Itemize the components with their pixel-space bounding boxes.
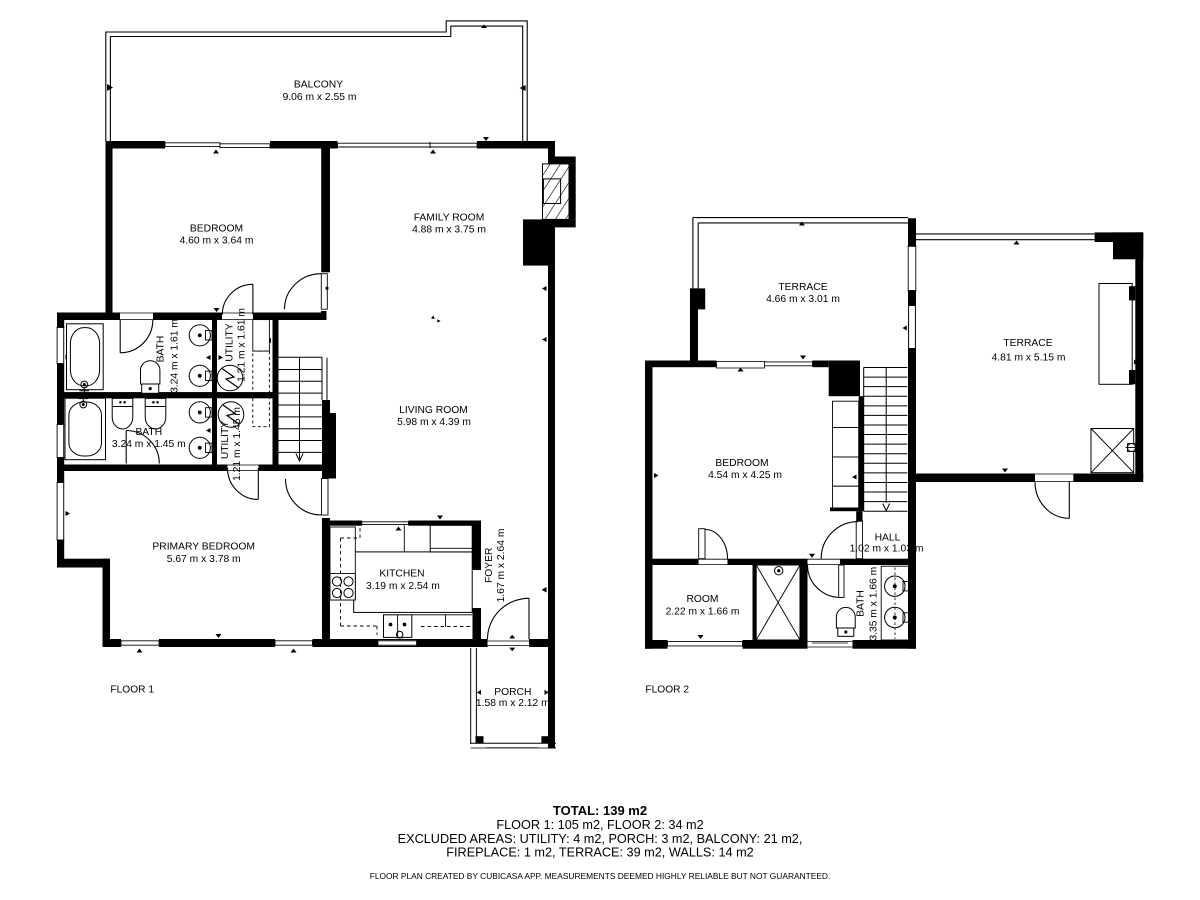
svg-text:3.24 m x 1.61 m: 3.24 m x 1.61 m — [170, 319, 181, 393]
svg-text:2.22 m x 1.66 m: 2.22 m x 1.66 m — [666, 606, 740, 617]
svg-text:FLOOR 1: 105 m2, FLOOR 2: 34 m: FLOOR 1: 105 m2, FLOOR 2: 34 m2 — [496, 818, 703, 832]
svg-text:5.67 m x 3.78 m: 5.67 m x 3.78 m — [167, 554, 241, 565]
svg-text:TERRACE: TERRACE — [778, 282, 827, 293]
svg-text:PORCH: PORCH — [494, 687, 531, 698]
svg-text:1.58 m x 2.12 m: 1.58 m x 2.12 m — [476, 698, 550, 709]
svg-text:1.21 m x 1.45 m: 1.21 m x 1.45 m — [232, 407, 243, 481]
svg-text:9.06 m x 2.55 m: 9.06 m x 2.55 m — [283, 92, 357, 103]
svg-text:BEDROOM: BEDROOM — [715, 458, 768, 469]
svg-text:1.67 m x 2.64 m: 1.67 m x 2.64 m — [496, 529, 507, 603]
svg-text:PRIMARY BEDROOM: PRIMARY BEDROOM — [152, 542, 255, 553]
svg-text:3.19 m x 2.54 m: 3.19 m x 2.54 m — [366, 581, 440, 592]
svg-text:4.54 m x 4.25 m: 4.54 m x 4.25 m — [708, 470, 782, 481]
svg-text:BALCONY: BALCONY — [294, 79, 343, 90]
svg-text:HALL: HALL — [875, 532, 901, 543]
svg-text:5.98 m x 4.39 m: 5.98 m x 4.39 m — [397, 417, 471, 428]
svg-text:BATH: BATH — [135, 427, 162, 438]
svg-text:UTILITY: UTILITY — [220, 421, 231, 459]
svg-text:KITCHEN: KITCHEN — [379, 569, 424, 580]
svg-text:BATH: BATH — [856, 590, 867, 617]
svg-text:LIVING ROOM: LIVING ROOM — [399, 405, 468, 416]
svg-text:FLOOR 2: FLOOR 2 — [645, 685, 689, 696]
svg-text:4.60 m x 3.64 m: 4.60 m x 3.64 m — [180, 236, 254, 247]
svg-text:FLOOR 1: FLOOR 1 — [110, 685, 154, 696]
svg-text:BEDROOM: BEDROOM — [190, 224, 243, 235]
svg-text:4.81 m x 5.15 m: 4.81 m x 5.15 m — [992, 353, 1066, 364]
svg-text:1.02 m x 1.03 m: 1.02 m x 1.03 m — [850, 544, 924, 555]
svg-text:4.88 m x 3.75 m: 4.88 m x 3.75 m — [412, 225, 486, 236]
svg-text:TOTAL: 139 m2: TOTAL: 139 m2 — [553, 803, 647, 818]
svg-text:FOYER: FOYER — [484, 548, 495, 583]
svg-text:FIREPLACE: 1 m2, TERRACE: 39 m: FIREPLACE: 1 m2, TERRACE: 39 m2, WALLS: … — [446, 846, 753, 860]
svg-text:3.35 m x 1.66 m: 3.35 m x 1.66 m — [869, 567, 880, 641]
svg-text:FLOOR PLAN CREATED BY CUBICASA: FLOOR PLAN CREATED BY CUBICASA APP. MEAS… — [370, 871, 831, 881]
svg-text:1.21 m x 1.61 m: 1.21 m x 1.61 m — [237, 308, 248, 382]
svg-text:FAMILY ROOM: FAMILY ROOM — [414, 212, 485, 223]
svg-text:EXCLUDED AREAS: UTILITY: 4 m2,: EXCLUDED AREAS: UTILITY: 4 m2, PORCH: 3 … — [398, 832, 803, 846]
svg-text:UTILITY: UTILITY — [225, 323, 236, 361]
svg-text:ROOM: ROOM — [686, 594, 718, 605]
svg-text:BATH: BATH — [156, 336, 167, 363]
svg-text:3.24 m x 1.45 m: 3.24 m x 1.45 m — [112, 439, 186, 450]
svg-text:4.66 m x 3.01 m: 4.66 m x 3.01 m — [766, 294, 840, 305]
svg-text:TERRACE: TERRACE — [1003, 338, 1052, 349]
